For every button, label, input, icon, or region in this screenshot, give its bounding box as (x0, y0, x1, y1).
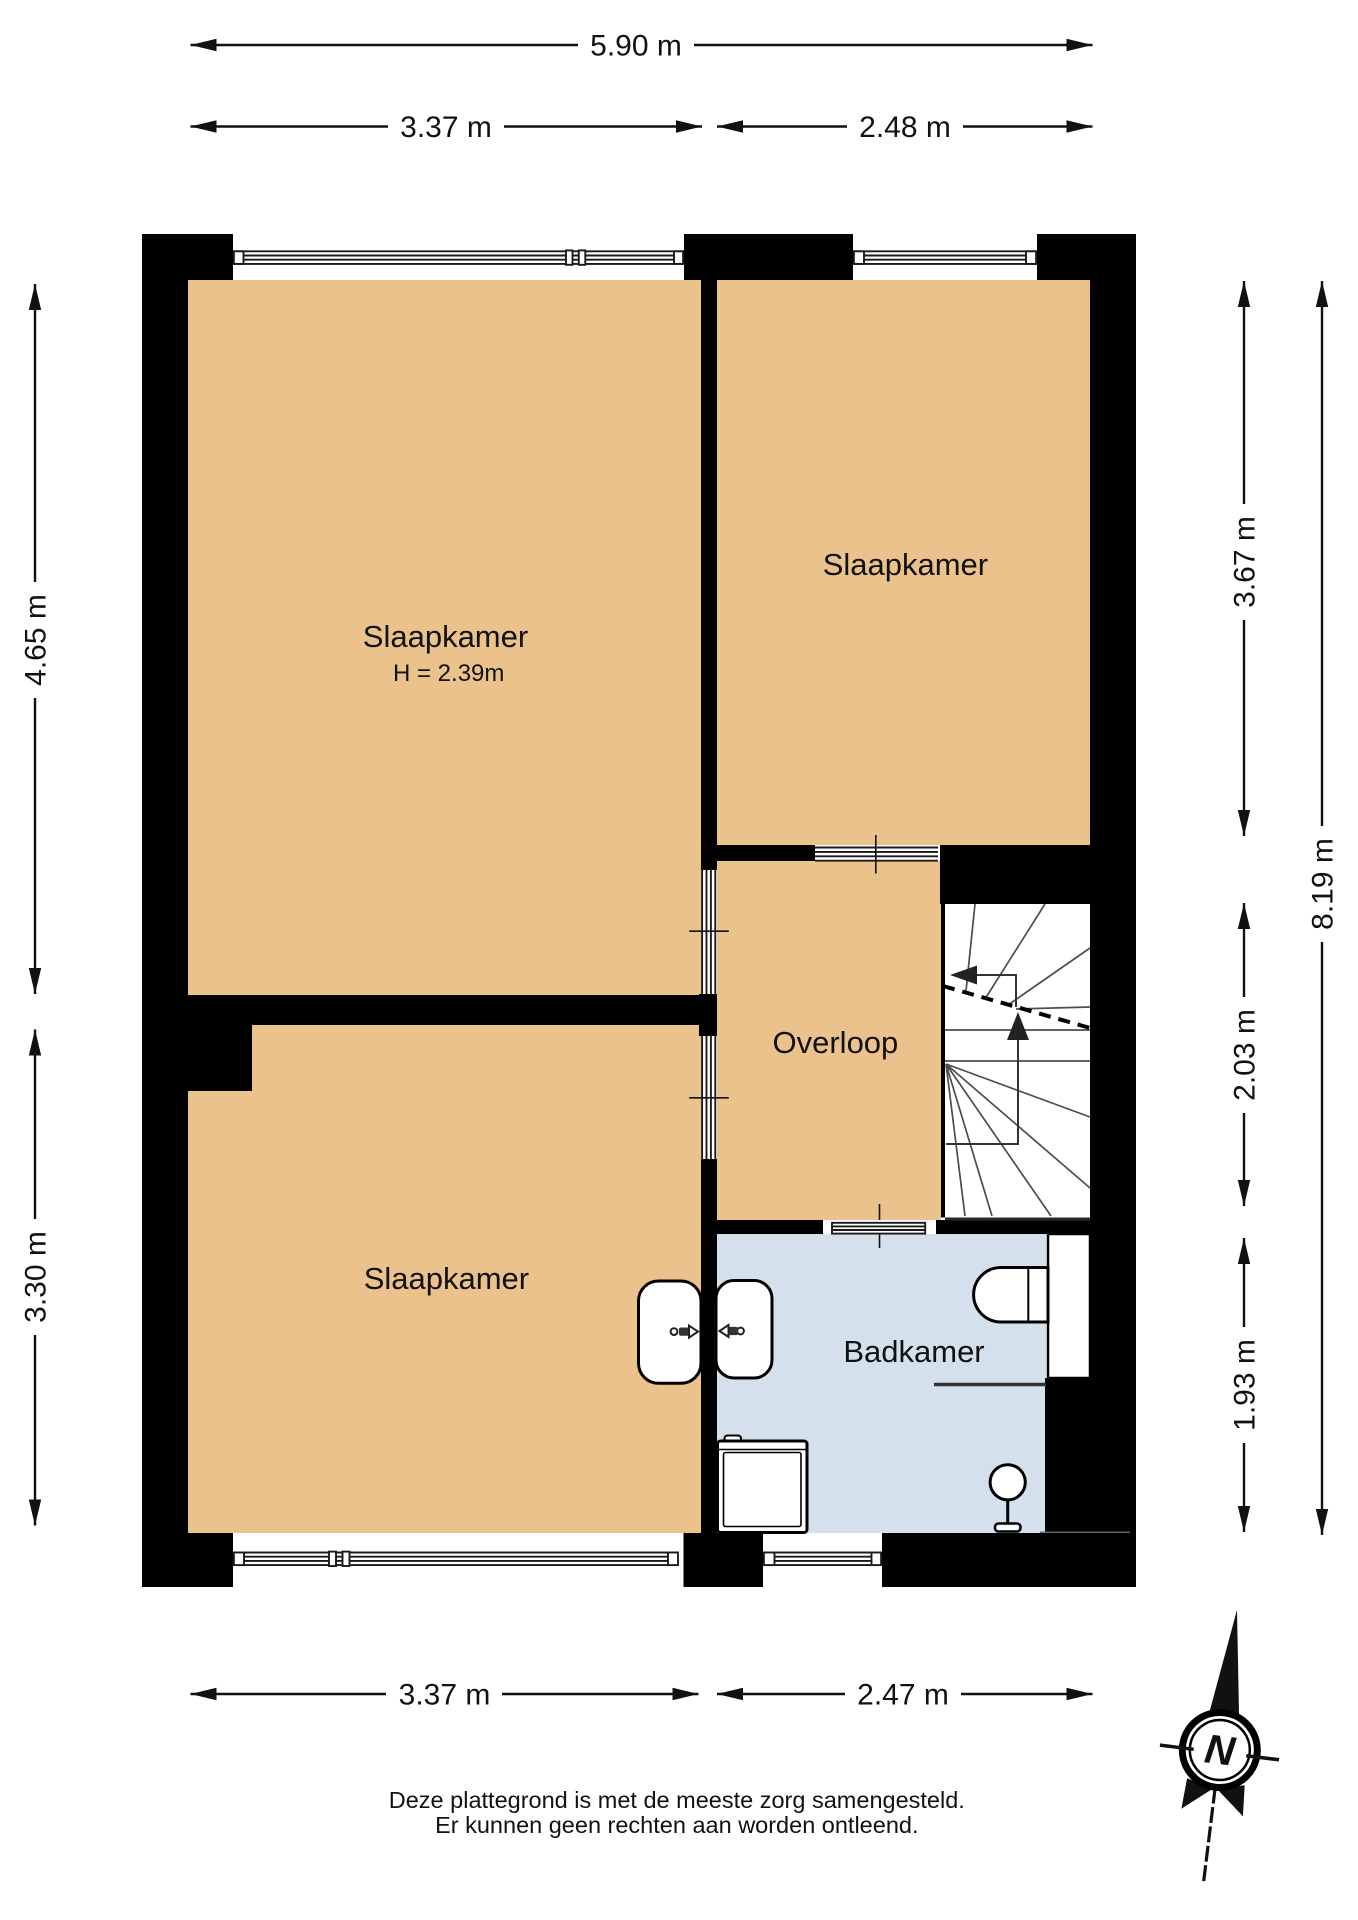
svg-text:3.37 m: 3.37 m (400, 111, 492, 144)
svg-text:2.48 m: 2.48 m (859, 111, 951, 144)
svg-text:8.19 m: 8.19 m (1307, 838, 1340, 930)
svg-text:Slaapkamer: Slaapkamer (363, 619, 528, 654)
svg-text:Badkamer: Badkamer (843, 1334, 984, 1369)
svg-text:2.03 m: 2.03 m (1229, 1009, 1262, 1101)
svg-text:1.93 m: 1.93 m (1229, 1339, 1262, 1431)
svg-text:3.37 m: 3.37 m (399, 1679, 491, 1712)
svg-text:Slaapkamer: Slaapkamer (364, 1261, 529, 1296)
svg-text:2.47 m: 2.47 m (857, 1679, 949, 1712)
svg-text:Deze plattegrond is met de mee: Deze plattegrond is met de meeste zorg s… (389, 1787, 965, 1813)
svg-text:Slaapkamer: Slaapkamer (823, 547, 988, 582)
svg-text:5.90 m: 5.90 m (590, 30, 682, 63)
svg-text:Er kunnen geen rechten aan wor: Er kunnen geen rechten aan worden ontlee… (435, 1812, 918, 1838)
svg-text:Overloop: Overloop (773, 1025, 899, 1060)
svg-text:3.67 m: 3.67 m (1229, 516, 1262, 608)
svg-text:H = 2.39m: H = 2.39m (393, 660, 504, 687)
svg-text:4.65 m: 4.65 m (20, 594, 53, 686)
svg-text:3.30 m: 3.30 m (20, 1231, 53, 1323)
